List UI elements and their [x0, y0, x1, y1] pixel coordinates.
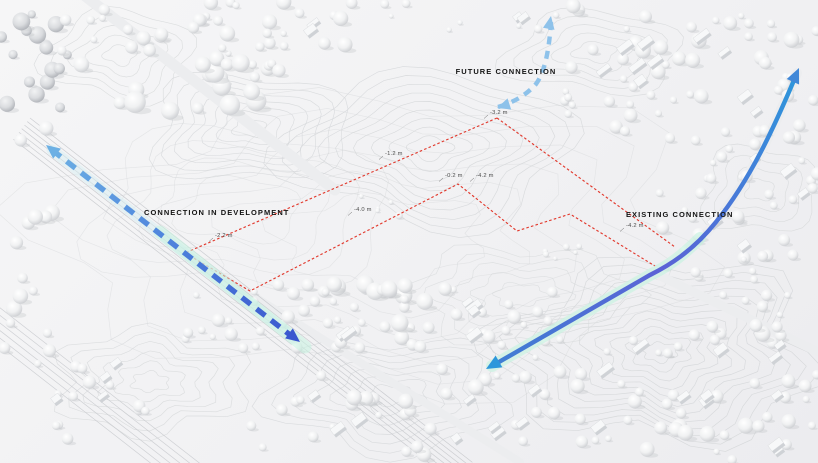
tree: [665, 133, 675, 143]
tree: [663, 348, 673, 358]
tree: [656, 189, 664, 197]
dimension-label: -1.2 m: [385, 151, 403, 157]
tree: [531, 407, 542, 418]
tree: [123, 25, 133, 35]
tree: [262, 28, 272, 38]
tree: [640, 442, 655, 457]
existing-connection-label: EXISTING CONNECTION: [626, 210, 733, 219]
tree: [218, 44, 226, 52]
tree: [381, 280, 398, 297]
tree: [721, 127, 730, 136]
tree: [68, 391, 78, 401]
tree: [656, 221, 669, 234]
tree: [43, 344, 56, 357]
tree: [565, 61, 578, 74]
tree: [308, 431, 319, 442]
tree: [24, 76, 35, 87]
dimension-labels: -3.2 m-1.2 m-2.2 m-4.0 m-0.2 m-4.2 m-4.2…: [209, 110, 644, 242]
tree: [783, 32, 799, 48]
tree: [678, 425, 694, 441]
tree: [603, 348, 610, 355]
tree: [516, 23, 521, 28]
tree: [446, 27, 451, 32]
tree: [424, 423, 436, 435]
tree: [688, 329, 699, 340]
contour-line: [371, 119, 489, 182]
tree: [326, 276, 341, 291]
tree: [250, 72, 260, 82]
tree: [700, 426, 716, 442]
tree: [655, 110, 662, 117]
tree: [712, 17, 719, 24]
tree: [243, 83, 260, 100]
tree: [749, 378, 760, 389]
dimension-label: -4.2 m: [476, 173, 494, 179]
tree: [646, 91, 655, 100]
tree: [398, 394, 413, 409]
tree: [497, 341, 506, 350]
tree: [670, 96, 677, 103]
building: [451, 432, 464, 445]
tree: [686, 90, 694, 98]
tree: [623, 416, 632, 425]
tree: [252, 342, 260, 350]
tree: [685, 53, 700, 68]
tree: [518, 436, 528, 446]
tree: [99, 15, 106, 22]
tree: [457, 20, 462, 25]
tree: [653, 40, 668, 55]
tree: [436, 363, 448, 375]
tree: [125, 41, 138, 54]
tree: [375, 208, 380, 213]
tree: [281, 310, 294, 323]
tree: [764, 190, 774, 200]
tree: [512, 374, 521, 383]
connection-in-development-line: [52, 150, 294, 338]
tree: [334, 316, 341, 323]
tree: [782, 414, 796, 428]
dimension-tick: [209, 238, 213, 242]
tree: [136, 31, 150, 45]
dimension-label: -4.2 m: [626, 223, 644, 229]
tree: [781, 374, 795, 388]
tree: [749, 138, 761, 150]
tree: [224, 327, 237, 340]
tree: [389, 14, 394, 19]
tree: [757, 251, 768, 262]
tree: [438, 282, 451, 295]
tree: [532, 306, 543, 317]
tree: [569, 101, 576, 108]
tree: [195, 56, 211, 72]
tree: [553, 256, 557, 260]
tree: [90, 36, 97, 43]
tree: [73, 57, 89, 73]
tree: [28, 209, 43, 224]
tree: [493, 372, 500, 379]
tree: [246, 421, 256, 431]
tree: [695, 187, 707, 199]
tree: [706, 321, 718, 333]
tree: [573, 250, 577, 254]
tree: [77, 363, 87, 373]
site-boundary-line: [185, 118, 655, 291]
tree: [727, 455, 737, 463]
tree: [799, 380, 812, 393]
tree: [411, 440, 423, 452]
tree: [543, 316, 552, 325]
tree: [423, 321, 435, 333]
tree: [350, 303, 359, 312]
tree: [639, 10, 652, 23]
tree: [17, 273, 28, 284]
tree: [232, 2, 239, 9]
tree: [124, 91, 146, 113]
tree: [83, 376, 96, 389]
tree: [605, 435, 612, 442]
tree: [28, 86, 44, 102]
railway-track: [0, 324, 311, 463]
tree: [161, 102, 179, 120]
tree: [280, 42, 289, 51]
tree: [635, 388, 644, 397]
tree: [778, 234, 790, 246]
tree: [333, 11, 348, 26]
tree: [287, 287, 300, 300]
building: [780, 163, 797, 180]
tree: [354, 342, 365, 353]
building: [591, 419, 608, 435]
dimension-label: -4.0 m: [354, 207, 372, 213]
tree: [750, 276, 758, 284]
tree: [12, 13, 30, 31]
tree: [39, 121, 53, 135]
tree: [626, 100, 634, 108]
tree: [213, 16, 223, 26]
building: [737, 89, 754, 105]
tree: [767, 20, 775, 28]
tree: [617, 380, 625, 388]
tree: [301, 278, 314, 291]
tree: [212, 313, 225, 326]
tree: [757, 301, 768, 312]
tree: [623, 26, 629, 32]
tree: [52, 421, 61, 430]
tree: [504, 300, 513, 309]
tree: [774, 86, 783, 95]
tree: [264, 37, 276, 49]
tree: [676, 408, 687, 419]
building: [596, 63, 613, 78]
connection-routes: [42, 15, 805, 375]
dimension-label: -2.2 m: [215, 233, 233, 239]
tree: [719, 291, 727, 299]
dimension-label: -0.2 m: [445, 173, 463, 179]
tree: [723, 16, 737, 30]
tree: [192, 102, 204, 114]
tree: [259, 443, 267, 451]
tree: [39, 41, 53, 55]
tree: [620, 126, 630, 136]
tree: [13, 288, 29, 304]
tree: [379, 321, 390, 332]
tree: [576, 243, 582, 249]
tree: [388, 200, 393, 205]
tree: [155, 28, 169, 42]
tree: [86, 16, 95, 25]
tree: [187, 22, 199, 34]
tree: [749, 319, 762, 332]
tree: [749, 268, 756, 275]
tree: [375, 412, 382, 419]
tree: [507, 310, 521, 324]
tree: [416, 293, 433, 310]
tree: [691, 135, 701, 145]
tree: [767, 32, 777, 42]
tree: [811, 26, 818, 36]
tree: [777, 312, 784, 319]
tree: [723, 269, 732, 278]
tree: [337, 37, 352, 52]
tree: [672, 51, 686, 65]
tree: [321, 288, 329, 296]
dimension-tick: [439, 178, 443, 182]
tree: [359, 194, 364, 199]
tree: [272, 279, 284, 291]
tree: [272, 64, 285, 77]
tree: [398, 278, 413, 293]
tree: [43, 328, 52, 337]
tree: [587, 44, 598, 55]
tree: [783, 131, 795, 143]
tree: [501, 326, 510, 335]
contour-line: [499, 272, 806, 436]
tree: [575, 368, 587, 380]
building: [463, 394, 476, 407]
tree: [256, 326, 265, 335]
tree: [548, 407, 561, 420]
tree: [710, 160, 716, 166]
tree: [762, 412, 772, 422]
tree: [563, 244, 570, 251]
tree: [553, 365, 566, 378]
tree: [198, 326, 206, 334]
tree: [29, 286, 38, 295]
tree: [255, 42, 265, 52]
building: [737, 239, 752, 254]
tree: [10, 236, 23, 249]
tree: [761, 290, 772, 301]
tree: [744, 32, 753, 41]
tree: [183, 327, 193, 337]
tree: [591, 436, 599, 444]
future-connection-label: FUTURE CONNECTION: [456, 67, 557, 76]
tree: [232, 54, 250, 72]
tree: [556, 336, 563, 343]
connection-in-development-label: CONNECTION IN DEVELOPMENT: [144, 208, 289, 217]
tree: [706, 173, 716, 183]
tree: [400, 295, 409, 304]
tree: [60, 14, 71, 25]
contour-line: [98, 351, 202, 411]
tree: [784, 292, 791, 299]
tree: [686, 22, 697, 33]
tree: [655, 349, 662, 356]
road: [652, 272, 818, 352]
tree: [298, 305, 310, 317]
tree: [310, 296, 321, 307]
building: [718, 46, 732, 59]
contour-line: [272, 347, 496, 453]
tree: [323, 318, 333, 328]
tree: [329, 298, 337, 306]
tree: [808, 422, 816, 430]
tree: [744, 18, 754, 28]
tree: [759, 57, 771, 69]
tree: [318, 37, 331, 50]
tree: [414, 341, 426, 353]
contour-line: [493, 282, 551, 306]
tree: [788, 195, 797, 204]
tree: [662, 399, 673, 410]
contour-line: [130, 371, 169, 393]
tree: [14, 134, 27, 147]
tree: [346, 390, 362, 406]
tree: [604, 96, 615, 107]
tree: [741, 256, 747, 262]
tree: [620, 75, 628, 83]
dimension-label: -3.2 m: [490, 110, 508, 116]
tree: [280, 30, 286, 36]
tree: [725, 145, 733, 153]
tree: [262, 14, 277, 29]
tree: [534, 25, 543, 34]
tree: [629, 336, 638, 345]
tree: [55, 102, 65, 112]
tree: [296, 396, 304, 404]
tree: [543, 251, 549, 257]
future-connection-line: [498, 22, 551, 107]
tree: [276, 404, 288, 416]
tree: [564, 110, 572, 118]
tree: [807, 183, 817, 193]
tree: [694, 89, 709, 104]
railway-track: [0, 319, 315, 463]
tree: [553, 12, 560, 19]
contour-line: [113, 361, 185, 402]
contour-line: [262, 192, 484, 295]
tree: [741, 297, 749, 305]
tree: [193, 292, 200, 299]
tree: [576, 436, 588, 448]
tree: [238, 343, 248, 353]
tree: [803, 396, 810, 403]
tree: [316, 371, 326, 381]
contour-line: [515, 280, 791, 429]
tree: [143, 44, 156, 57]
tree: [141, 407, 150, 416]
tree: [391, 314, 409, 332]
tree: [54, 63, 65, 74]
site-boundary-line: [497, 118, 675, 247]
tree: [570, 379, 584, 393]
tree: [770, 202, 778, 210]
tree: [738, 418, 754, 434]
tree: [720, 430, 730, 440]
building: [750, 106, 763, 119]
tree: [482, 330, 495, 343]
tree: [295, 8, 305, 18]
tree: [219, 26, 235, 42]
site-plan-canvas: -3.2 m-1.2 m-2.2 m-4.0 m-0.2 m-4.2 m-4.2…: [0, 0, 818, 463]
tree: [520, 322, 527, 329]
tree: [771, 321, 782, 332]
tree: [57, 46, 67, 56]
tree: [752, 420, 764, 432]
tree: [6, 318, 16, 328]
tree: [654, 421, 667, 434]
tree: [812, 370, 818, 379]
tree: [624, 109, 638, 123]
tree: [547, 287, 558, 298]
tree: [808, 95, 818, 105]
tree: [8, 50, 17, 59]
tree: [451, 309, 463, 321]
tree: [787, 250, 798, 261]
road: [80, 0, 335, 190]
site-plan-diagram: -3.2 m-1.2 m-2.2 m-4.0 m-0.2 m-4.2 m-4.2…: [0, 0, 818, 463]
tree: [716, 151, 727, 162]
tree: [710, 335, 720, 345]
building: [110, 357, 124, 370]
tree: [532, 354, 538, 360]
tree: [210, 334, 216, 340]
building: [769, 351, 784, 365]
tree: [690, 267, 700, 277]
dimension-tick: [470, 178, 474, 182]
tree: [738, 13, 744, 19]
tree: [674, 342, 683, 351]
tree: [401, 446, 412, 457]
tree: [564, 94, 572, 102]
tree: [468, 379, 484, 395]
tree: [575, 414, 586, 425]
building: [628, 58, 647, 75]
tree: [99, 4, 110, 15]
tree: [358, 319, 366, 327]
tree: [225, 317, 232, 324]
building: [308, 390, 322, 403]
tree: [793, 119, 806, 132]
tree: [62, 433, 74, 445]
tree: [713, 449, 719, 455]
tree: [440, 388, 452, 400]
tree: [220, 95, 240, 115]
tree: [34, 360, 42, 368]
tree: [221, 58, 234, 71]
tree: [798, 157, 805, 164]
